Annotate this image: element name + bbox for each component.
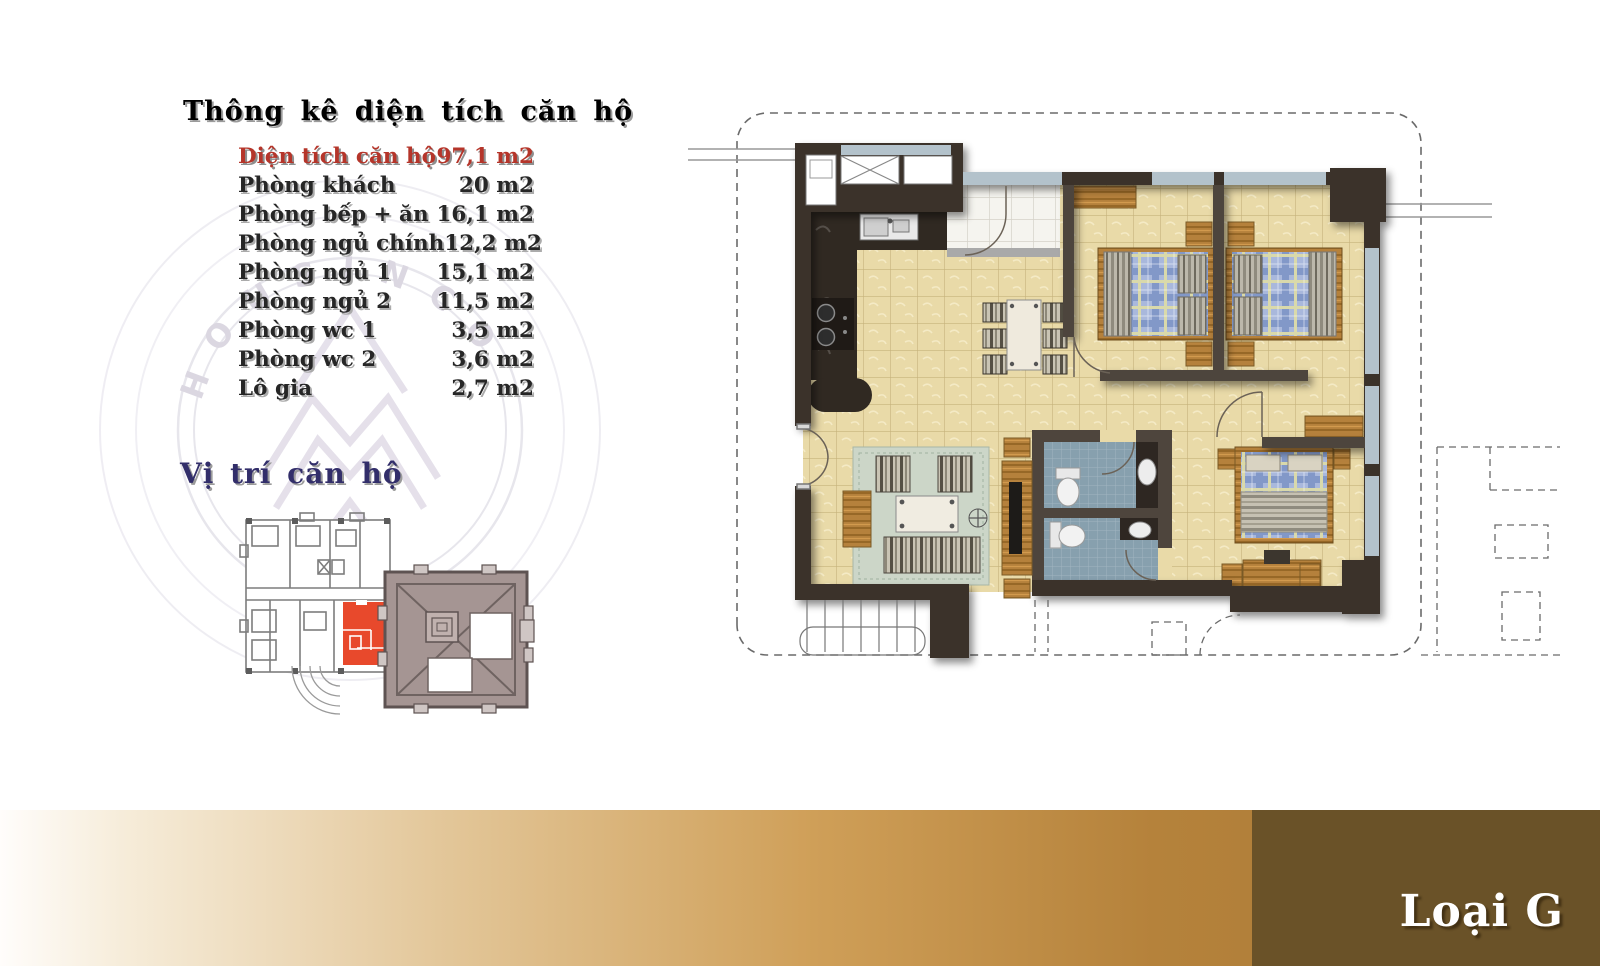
nightstand [1218,449,1235,469]
living-room-set [843,447,989,585]
closet [1305,416,1363,437]
stats-title: Thông kê diện tích căn hộ [183,96,633,127]
stat-label: Phòng bếp + ăn [238,200,429,229]
stat-value: 97,1 m2 [436,142,534,171]
location-map-stairs [292,666,340,714]
stat-row: Phòng wc 2 3,6 m2 [238,345,534,374]
stat-row: Phòng ngủ chính 12,2 m2 [238,229,534,258]
stats-table: Diện tích căn hộ 97,1 m2 Phòng khách 20 … [238,142,534,403]
stat-value: 2,7 m2 [451,374,534,403]
nightstand [1186,342,1212,366]
dining-table [1007,300,1041,370]
stat-label: Phòng khách [238,171,395,200]
entry-sill [947,248,1060,257]
location-map [240,513,534,714]
balcony-stairs [800,600,925,655]
armchair [876,456,910,492]
stat-value: 16,1 m2 [436,200,534,229]
nightstand [1186,222,1212,246]
stat-row: Phòng khách 20 m2 [238,171,534,200]
apartment-type-label: Loại G [1400,886,1564,937]
stat-value: 15,1 m2 [436,258,534,287]
stat-row: Diện tích căn hộ 97,1 m2 [238,142,534,171]
stat-row: Phòng wc 1 3,5 m2 [238,316,534,345]
dining-set [983,300,1067,374]
footer-dark-block: Loại G [1252,810,1600,966]
coffee-table [896,496,958,532]
stat-label: Phòng wc 1 [238,316,376,345]
stat-label: Lô gia [238,374,312,403]
footer-gradient [0,810,1252,966]
brochure-page: HOUSINCO [0,0,1600,972]
footer-bar: Loại G [0,810,1600,966]
stat-value: 11,5 m2 [436,287,534,316]
tv-cabinet [1002,438,1032,598]
desk-chair [1264,550,1290,564]
stat-value: 12,2 m2 [444,229,542,258]
stat-label: Phòng wc 2 [238,345,376,374]
nightstand [1228,342,1254,366]
nightstand [1334,449,1350,469]
floor-plan [688,113,1560,658]
location-title: Vị trí căn hộ [180,457,403,490]
location-map-tower [378,565,534,713]
wc1-toilet [1056,468,1080,479]
entry-hall-tiles [947,185,1060,248]
bathroom-block [1032,430,1172,594]
stat-row: Phòng ngủ 2 11,5 m2 [238,287,534,316]
stat-label: Phòng ngủ chính [238,229,444,258]
stat-label: Phòng ngủ 2 [238,287,391,316]
stat-value: 3,6 m2 [451,345,534,374]
side-table [843,491,871,547]
stat-value: 3,5 m2 [451,316,534,345]
stat-row: Phòng ngủ 1 15,1 m2 [238,258,534,287]
stat-label: Diện tích căn hộ [238,142,436,171]
armchair [938,456,972,492]
stat-row: Lô gia 2,7 m2 [238,374,534,403]
closet [1072,186,1136,208]
nightstand [1228,222,1254,246]
sofa [884,537,980,573]
stat-label: Phòng ngủ 1 [238,258,391,287]
stat-row: Phòng bếp + ăn 16,1 m2 [238,200,534,229]
stat-value: 20 m2 [459,171,534,200]
